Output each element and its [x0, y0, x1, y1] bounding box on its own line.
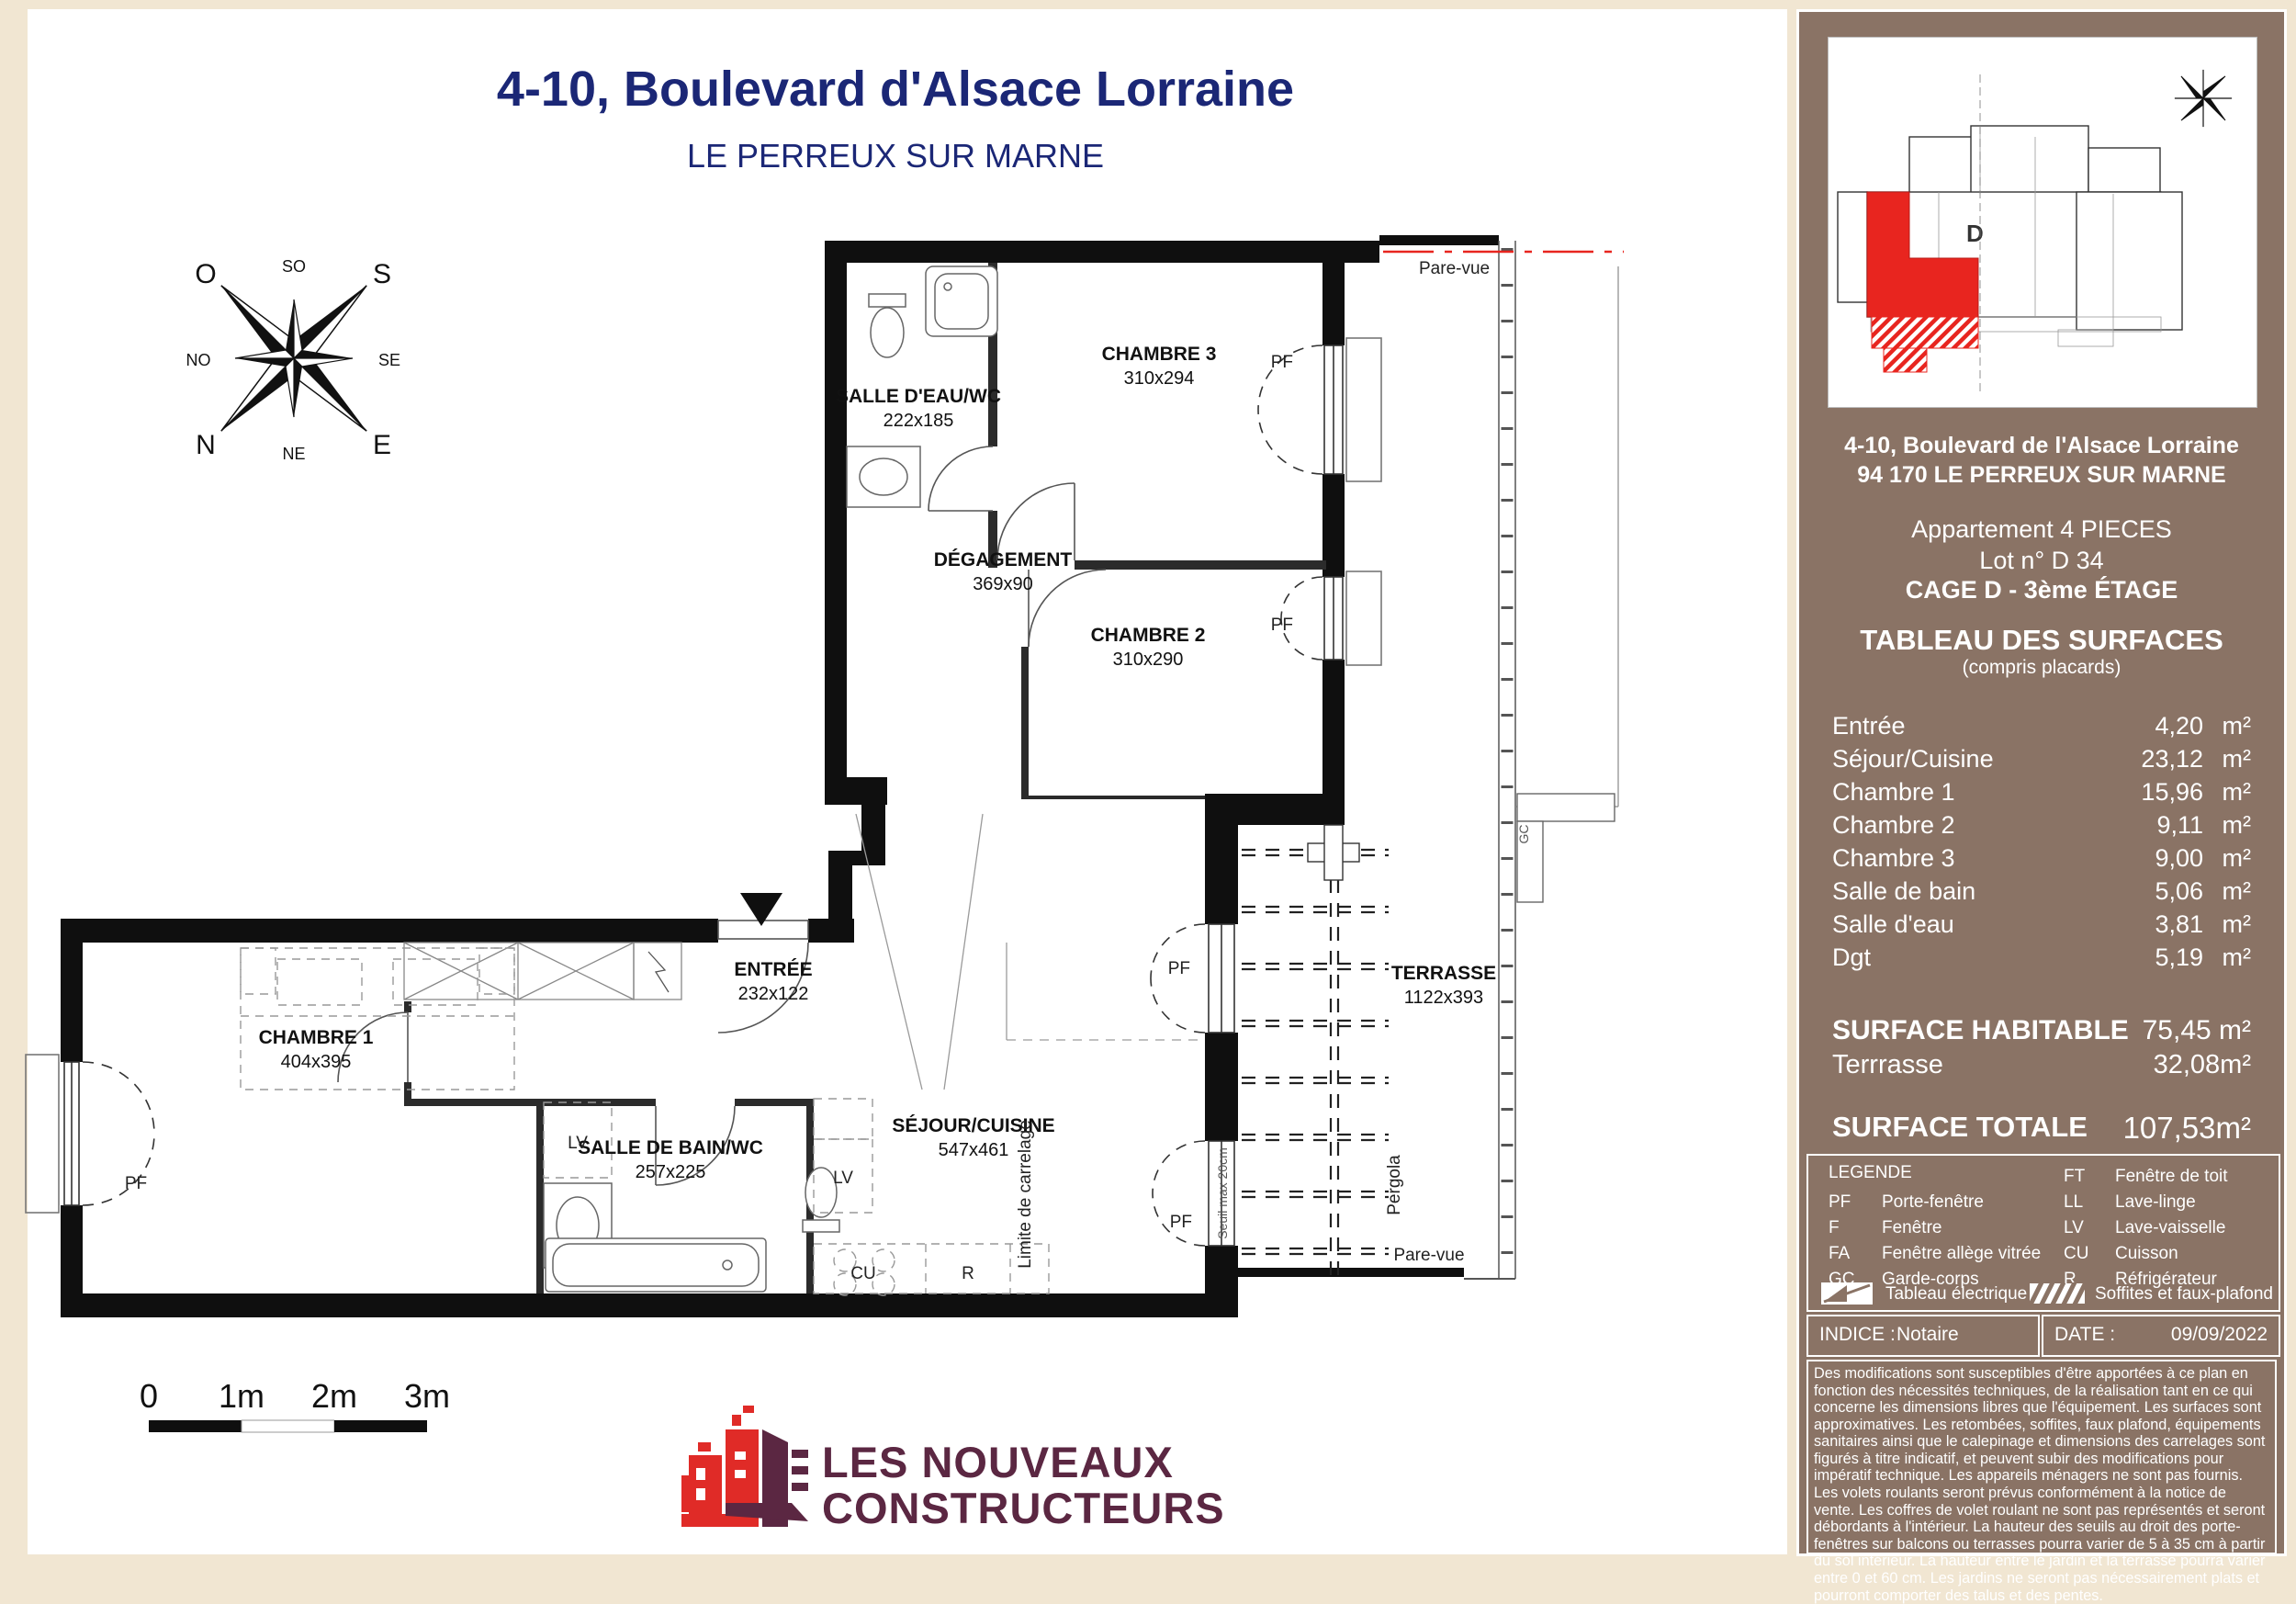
- row-label: Séjour/Cuisine: [1832, 745, 2111, 778]
- indice-label: INDICE :: [1819, 1324, 1896, 1346]
- cu-label: CU: [850, 1264, 875, 1283]
- legend-label: Lave-linge: [2115, 1192, 2196, 1213]
- row-value: 4,20: [2111, 712, 2203, 745]
- compass-o-label: O: [195, 259, 216, 289]
- scale-1m: 1m: [219, 1377, 264, 1415]
- surface-habitable-value: 75,45 m²: [2143, 1015, 2251, 1046]
- row-unit: m²: [2203, 712, 2251, 745]
- row-unit: m²: [2203, 910, 2251, 943]
- cage-floor: CAGE D - 3ème ÉTAGE: [1799, 576, 2284, 604]
- key-plan-drawing: D: [1829, 38, 2255, 405]
- surface-totale-label: SURFACE TOTALE: [1832, 1111, 2123, 1146]
- row-value: 3,81: [2111, 910, 2203, 943]
- room-degagement-dims: 369x90: [973, 574, 1033, 594]
- compass-n-label: N: [196, 430, 216, 460]
- row-unit: m²: [2203, 811, 2251, 844]
- row-label: Chambre 1: [1832, 778, 2111, 811]
- sidebar-address-line1: 4-10, Boulevard de l'Alsace Lorraine: [1799, 433, 2284, 459]
- surface-totale-value: 107,53m²: [2123, 1111, 2251, 1146]
- row-value: 23,12: [2111, 745, 2203, 778]
- logo-buildings-icon: [681, 1406, 808, 1527]
- seuil-label: Seuil max 20cm: [1215, 1147, 1230, 1239]
- scale-bar: 0 1m 2m 3m: [140, 1377, 450, 1432]
- room-salledeau-dims: 222x185: [884, 411, 954, 431]
- info-sidebar: D 4-10, Boulevard de l'Alsace Lorraine 9…: [1796, 9, 2287, 1556]
- legend-abbr: F: [1829, 1218, 1840, 1238]
- surface-row: Dgt5,19m²: [1832, 943, 2251, 977]
- legend-label: Fenêtre de toit: [2115, 1167, 2228, 1187]
- room-chambre3-dims: 310x294: [1124, 368, 1195, 389]
- compass-s-label: S: [373, 259, 391, 289]
- parevue-top-label: Pare-vue: [1419, 259, 1490, 278]
- surface-row: Salle de bain5,06m²: [1832, 877, 2251, 910]
- surface-table-title: TABLEAU DES SURFACES: [1799, 624, 2284, 657]
- compass-rose-icon: S O N E SO SE NO NE: [149, 213, 440, 504]
- floorplan-sheet: 4-10, Boulevard d'Alsace Lorraine LE PER…: [0, 0, 2296, 1564]
- logo: LES NOUVEAUX CONSTRUCTEURS: [681, 1406, 1225, 1532]
- page-subtitle: LE PERREUX SUR MARNE: [687, 137, 1104, 175]
- row-value: 5,19: [2111, 943, 2203, 977]
- room-chambre1-label: CHAMBRE 1: [259, 1027, 374, 1048]
- soffites-icon: [2029, 1282, 2086, 1305]
- surface-habitable-row: SURFACE HABITABLE 75,45 m²: [1832, 1015, 2251, 1046]
- row-label: Dgt: [1832, 943, 2111, 977]
- sidebar-address-line2: 94 170 LE PERREUX SUR MARNE: [1799, 462, 2284, 489]
- legend-label: Fenêtre: [1882, 1218, 1941, 1238]
- surface-row: Séjour/Cuisine23,12m²: [1832, 745, 2251, 778]
- row-unit: m²: [2203, 844, 2251, 877]
- legend-title: LEGENDE: [1829, 1163, 1912, 1183]
- pf-chambre3-label: PF: [1271, 353, 1293, 372]
- row-label: Chambre 3: [1832, 844, 2111, 877]
- walls: [61, 235, 1499, 1317]
- room-chambre2-dims: 310x290: [1113, 650, 1184, 670]
- soffites-label: Soffites et faux-plafond: [2095, 1284, 2273, 1305]
- closet-electrical: [404, 943, 681, 1000]
- room-sejour-dims: 547x461: [939, 1140, 1009, 1160]
- logo-line1: LES NOUVEAUX: [822, 1438, 1174, 1486]
- page-title: 4-10, Boulevard d'Alsace Lorraine: [497, 62, 1294, 117]
- scale-3m: 3m: [404, 1377, 450, 1415]
- pf-sejour1-label: PF: [1168, 959, 1190, 978]
- date-value: 09/09/2022: [2171, 1324, 2268, 1346]
- room-chambre1-dims: 404x395: [281, 1052, 352, 1072]
- pf-chambre1-label: PF: [125, 1174, 147, 1193]
- soffit-lines: [856, 814, 1205, 1090]
- date-box: DATE : 09/09/2022: [2042, 1315, 2280, 1357]
- gc-label: GC: [1516, 825, 1531, 844]
- disclaimer-text: Des modifications sont susceptibles d'êt…: [1806, 1360, 2277, 1554]
- room-sdb-dims: 257x225: [636, 1162, 706, 1182]
- legend-label: Fenêtre allège vitrée: [1882, 1244, 2041, 1264]
- surface-table-subtitle: (compris placards): [1799, 657, 2284, 679]
- row-value: 9,00: [2111, 844, 2203, 877]
- windows: [26, 338, 1381, 1246]
- surface-row: Chambre 115,96m²: [1832, 778, 2251, 811]
- lot-number: Lot n° D 34: [1799, 547, 2284, 575]
- legend-abbr: CU: [2064, 1244, 2088, 1264]
- terrasse-row: Terrrasse 32,08m²: [1832, 1050, 2251, 1080]
- indice-box: INDICE : Notaire: [1806, 1315, 2040, 1357]
- terrasse-label: Terrrasse: [1832, 1050, 2154, 1080]
- legend-label: Cuisson: [2115, 1244, 2178, 1264]
- row-unit: m²: [2203, 778, 2251, 811]
- legend-label: Lave-vaisselle: [2115, 1218, 2225, 1238]
- legend-label: Porte-fenêtre: [1882, 1192, 1984, 1213]
- apartment-type: Appartement 4 PIECES: [1799, 515, 2284, 544]
- terrasse-value: 32,08m²: [2154, 1050, 2251, 1080]
- keyplan-cage-d: D: [1966, 220, 1984, 247]
- legend-abbr: LV: [2064, 1218, 2084, 1238]
- row-value: 15,96: [2111, 778, 2203, 811]
- electrical-panel-icon: [1821, 1282, 1873, 1305]
- legend-abbr: FA: [1829, 1244, 1850, 1264]
- compass-se-label: SE: [378, 351, 400, 369]
- scale-0: 0: [140, 1377, 158, 1415]
- compass-so-label: SO: [282, 257, 306, 276]
- row-label: Chambre 2: [1832, 811, 2111, 844]
- surface-row: Entrée4,20m²: [1832, 712, 2251, 745]
- key-plan: D: [1828, 37, 2257, 408]
- legend-abbr: LL: [2064, 1192, 2083, 1213]
- pergola-label: Pergola: [1385, 1155, 1404, 1215]
- pf-sejour2-label: PF: [1170, 1213, 1192, 1232]
- scale-2m: 2m: [311, 1377, 357, 1415]
- pf-chambre2-label: PF: [1271, 616, 1293, 635]
- pergola-rows: [1242, 850, 1389, 1254]
- compass-ne-label: NE: [282, 445, 305, 463]
- compass-no-label: NO: [186, 351, 211, 369]
- limite-carrelage-label: Limite de carrelage: [1016, 1120, 1035, 1269]
- r-label: R: [962, 1264, 974, 1283]
- row-label: Salle d'eau: [1832, 910, 2111, 943]
- room-entree-dims: 232x122: [738, 984, 809, 1004]
- row-label: Entrée: [1832, 712, 2111, 745]
- room-salledeau-label: SALLE D'EAU/WC: [836, 386, 1001, 407]
- row-value: 9,11: [2111, 811, 2203, 844]
- row-unit: m²: [2203, 943, 2251, 977]
- surface-totale-row: SURFACE TOTALE 107,53m²: [1832, 1111, 2251, 1146]
- row-label: Salle de bain: [1832, 877, 2111, 910]
- lv-cuisine-label: LV: [833, 1169, 853, 1188]
- row-unit: m²: [2203, 745, 2251, 778]
- indice-value: Notaire: [1896, 1324, 1959, 1346]
- parevue-bottom-label: Pare-vue: [1393, 1246, 1464, 1265]
- logo-line2: CONSTRUCTEURS: [822, 1484, 1225, 1532]
- room-terrasse-dims: 1122x393: [1404, 988, 1483, 1008]
- lv-sdb-label: LV: [568, 1134, 588, 1153]
- room-terrasse-label: TERRASSE: [1391, 963, 1496, 984]
- surface-row: Salle d'eau3,81m²: [1832, 910, 2251, 943]
- room-chambre3-label: CHAMBRE 3: [1102, 344, 1217, 365]
- date-label: DATE :: [2054, 1324, 2115, 1346]
- room-degagement-label: DÉGAGEMENT: [934, 549, 1073, 570]
- row-value: 5,06: [2111, 877, 2203, 910]
- legend-abbr: PF: [1829, 1192, 1851, 1213]
- compass-e-label: E: [373, 430, 391, 460]
- room-entree-label: ENTRÉE: [734, 959, 812, 980]
- terrace: [1242, 241, 1618, 1279]
- surface-habitable-label: SURFACE HABITABLE: [1832, 1015, 2143, 1046]
- surface-row: Chambre 39,00m²: [1832, 844, 2251, 877]
- surface-row: Chambre 29,11m²: [1832, 811, 2251, 844]
- legend-box: LEGENDE PF Porte-fenêtre F Fenêtre FA Fe…: [1806, 1154, 2280, 1312]
- room-chambre2-label: CHAMBRE 2: [1091, 625, 1206, 646]
- legend-abbr: FT: [2064, 1167, 2085, 1187]
- row-unit: m²: [2203, 877, 2251, 910]
- electrical-panel-label: Tableau électrique: [1885, 1284, 2027, 1305]
- room-sdb-label: SALLE DE BAIN/WC: [578, 1137, 763, 1158]
